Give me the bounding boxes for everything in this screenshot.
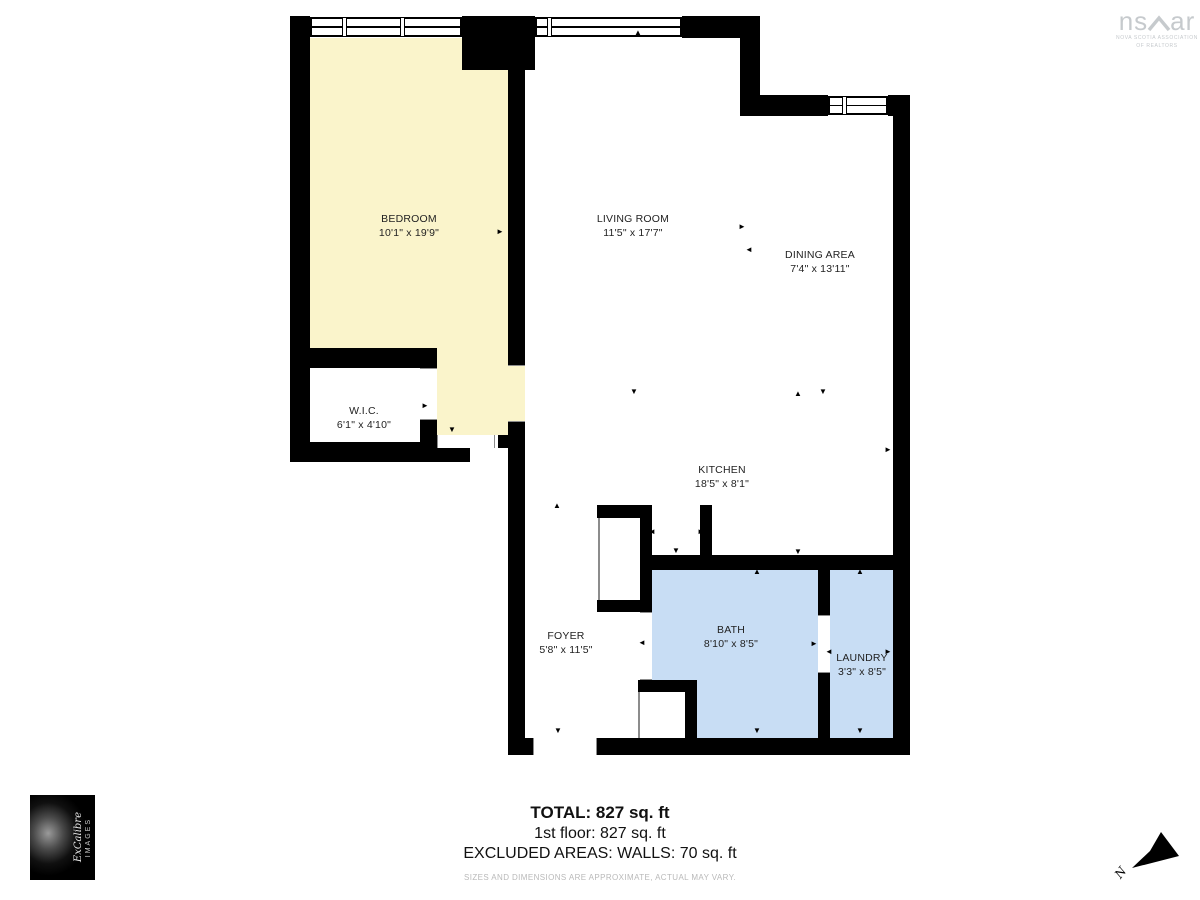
dimension-arrow-icon: ▼: [448, 426, 456, 434]
room-label-bedroom: BEDROOM 10'1" x 19'9": [379, 213, 439, 240]
dimension-arrow-icon: ►: [496, 228, 504, 236]
room-name: W.I.C.: [337, 405, 391, 418]
window-mullion: [547, 18, 552, 36]
dimension-arrow-icon: ▼: [819, 388, 827, 396]
nsar-subline-1: NOVA SCOTIA ASSOCIATION: [1116, 35, 1198, 43]
entry-door-opening: [533, 738, 597, 755]
wall-segment: [508, 738, 533, 755]
dimension-arrow-icon: ▲: [553, 502, 561, 510]
dimension-arrow-icon: ◄: [513, 231, 521, 239]
dimension-arrow-icon: ▲: [359, 353, 367, 361]
dimension-arrow-icon: ▼: [794, 548, 802, 556]
nsar-prefix: ns: [1119, 8, 1148, 34]
laundry-door-opening: [818, 615, 830, 673]
north-label: N: [1112, 864, 1130, 882]
corridor-door-opening: [437, 435, 495, 448]
room-fill-bedroom-corridor: [435, 350, 510, 435]
photographer-word: IMAGES: [85, 818, 92, 857]
window-pane-line: [537, 26, 680, 28]
dimension-arrow-icon: ◄: [648, 528, 656, 536]
nsar-logo: ns ar NOVA SCOTIA ASSOCIATION OF REALTOR…: [1116, 8, 1198, 50]
photographer-wordmark: ExCalibre IMAGES: [73, 795, 92, 880]
dimension-arrow-icon: ▼: [554, 727, 562, 735]
wall-segment: [818, 570, 830, 615]
photographer-logo: ExCalibre IMAGES: [30, 795, 95, 880]
wall-segment: [760, 95, 828, 116]
summary-block: TOTAL: 827 sq. ft 1st floor: 827 sq. ft …: [463, 803, 736, 882]
excluded-area: EXCLUDED AREAS: WALLS: 70 sq. ft: [463, 845, 736, 863]
window-mullion: [842, 97, 847, 114]
room-name: FOYER: [539, 630, 592, 643]
wall-segment: [740, 16, 760, 116]
room-name: LIVING ROOM: [597, 213, 669, 226]
dimension-arrow-icon: ▼: [672, 547, 680, 555]
room-label-laundry: LAUNDRY 3'3" x 8'5": [836, 652, 887, 679]
room-name: BATH: [704, 624, 758, 637]
room-dims: 6'1" x 4'10": [337, 419, 391, 432]
window-mullion: [342, 18, 347, 36]
room-dims: 5'8" x 11'5": [539, 644, 592, 657]
floor-area: 1st floor: 827 sq. ft: [463, 825, 736, 843]
dimension-arrow-icon: ▲: [634, 29, 642, 37]
room-name: LAUNDRY: [836, 652, 887, 665]
north-arrow-dart: [1132, 832, 1179, 868]
dimension-arrow-icon: ►: [697, 528, 705, 536]
room-label-wic: W.I.C. 6'1" x 4'10": [337, 405, 391, 432]
dimension-arrow-icon: ▼: [630, 388, 638, 396]
dimension-arrow-icon: ▼: [359, 446, 367, 454]
dimension-arrow-icon: ▼: [753, 727, 761, 735]
nsar-subline-2: OF REALTORS: [1116, 43, 1198, 51]
room-fill-bedroom: [310, 38, 510, 350]
window: [828, 96, 888, 115]
room-name: BEDROOM: [379, 213, 439, 226]
window: [535, 17, 682, 37]
room-dims: 10'1" x 19'9": [379, 227, 439, 240]
room-label-bath: BATH 8'10" x 8'5": [704, 624, 758, 651]
shower-fill: [638, 692, 685, 738]
dimension-arrow-icon: ◄: [294, 402, 302, 410]
dimension-arrow-icon: ►: [884, 446, 892, 454]
north-arrow: N: [1112, 824, 1192, 886]
dimension-arrow-icon: ▼: [856, 727, 864, 735]
house-roof-icon: [1147, 15, 1171, 32]
closet-door-line: [598, 518, 600, 600]
window: [310, 17, 462, 37]
room-label-living-room: LIVING ROOM 11'5" x 17'7": [597, 213, 669, 240]
window-pane-line: [312, 26, 460, 28]
dimension-arrow-icon: ▲: [794, 390, 802, 398]
dimension-arrow-icon: ◄: [515, 442, 523, 450]
photographer-brand: ExCalibre: [73, 812, 84, 862]
wall-segment: [685, 680, 697, 738]
wall-segment: [508, 38, 525, 365]
room-label-dining-area: DINING AREA 7'4" x 13'11": [785, 249, 855, 276]
dimension-arrow-icon: ◄: [745, 246, 753, 254]
room-dims: 11'5" x 17'7": [597, 227, 669, 240]
floor-plan-page: ◄►◄►◄▲▲▲▲▼▼►▲◄►▼▼▲▲▼▼◄►◄►◄▼▲▼◄►▼◄ BEDROO…: [0, 0, 1200, 900]
wall-segment: [893, 95, 910, 755]
disclaimer: SIZES AND DIMENSIONS ARE APPROXIMATE, AC…: [463, 873, 736, 882]
room-label-kitchen: KITCHEN 18'5" x 8'1": [695, 464, 749, 491]
dimension-arrow-icon: ◄: [638, 639, 646, 647]
wall-segment: [597, 505, 652, 518]
dimension-arrow-icon: ◄: [296, 232, 304, 240]
dimension-arrow-icon: ▲: [819, 106, 827, 114]
dimension-arrow-icon: ►: [738, 223, 746, 231]
nsar-subtext: NOVA SCOTIA ASSOCIATION OF REALTORS: [1116, 35, 1198, 50]
room-dims: 7'4" x 13'11": [785, 263, 855, 276]
dimension-arrow-icon: ◄: [514, 668, 522, 676]
total-area: TOTAL: 827 sq. ft: [463, 803, 736, 823]
wall-segment: [508, 422, 525, 755]
room-label-foyer: FOYER 5'8" x 11'5": [539, 630, 592, 657]
dimension-arrow-icon: ►: [421, 402, 429, 410]
dimension-arrow-icon: ►: [810, 640, 818, 648]
dimension-arrow-icon: ▲: [753, 568, 761, 576]
bedroom-door-opening: [508, 365, 525, 422]
room-name: DINING AREA: [785, 249, 855, 262]
room-name: KITCHEN: [695, 464, 749, 477]
dimension-arrow-icon: ▲: [510, 26, 518, 34]
window-pane-line: [830, 105, 886, 107]
nsar-wordmark: ns ar: [1116, 8, 1198, 34]
wall-segment: [597, 738, 910, 755]
wall-segment: [818, 673, 830, 738]
wic-door-opening: [420, 368, 437, 420]
shower-door-line: [638, 692, 640, 738]
wall-segment: [597, 600, 652, 612]
nsar-suffix: ar: [1170, 8, 1195, 34]
dimension-arrow-icon: ▲: [856, 568, 864, 576]
window-mullion: [400, 18, 405, 36]
room-dims: 18'5" x 8'1": [695, 478, 749, 491]
dimension-arrow-icon: ◄: [825, 648, 833, 656]
room-dims: 3'3" x 8'5": [836, 666, 887, 679]
room-dims: 8'10" x 8'5": [704, 638, 758, 651]
